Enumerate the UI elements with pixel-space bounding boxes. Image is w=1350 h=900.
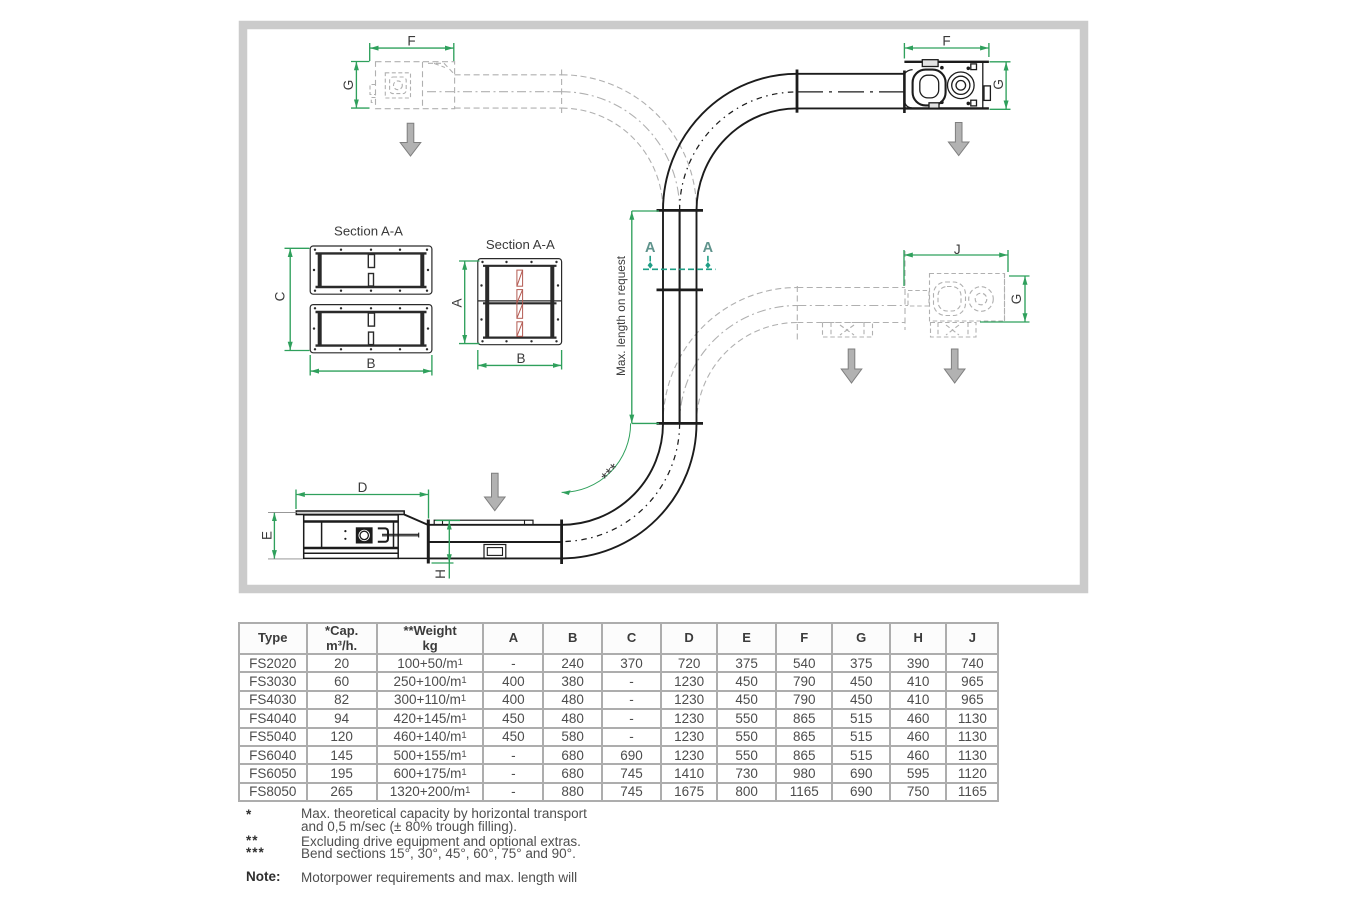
svg-text:Section A-A: Section A-A [486, 237, 555, 252]
svg-text:F: F [407, 34, 415, 49]
svg-text:J: J [954, 242, 961, 257]
svg-text:B: B [366, 356, 375, 371]
svg-text:E: E [260, 531, 275, 540]
svg-text:C: C [273, 291, 288, 301]
svg-text:G: G [991, 79, 1006, 90]
svg-text:G: G [341, 80, 356, 91]
svg-text:F: F [942, 34, 950, 49]
svg-text:Max. length on request: Max. length on request [614, 255, 628, 376]
svg-text:B: B [516, 351, 525, 366]
svg-text:A: A [645, 240, 656, 256]
svg-text:A: A [703, 240, 714, 256]
svg-text:Section A-A: Section A-A [334, 224, 403, 239]
svg-text:H: H [433, 569, 448, 579]
svg-text:G: G [1009, 294, 1024, 305]
svg-text:D: D [358, 480, 368, 495]
svg-text:A: A [450, 298, 465, 307]
